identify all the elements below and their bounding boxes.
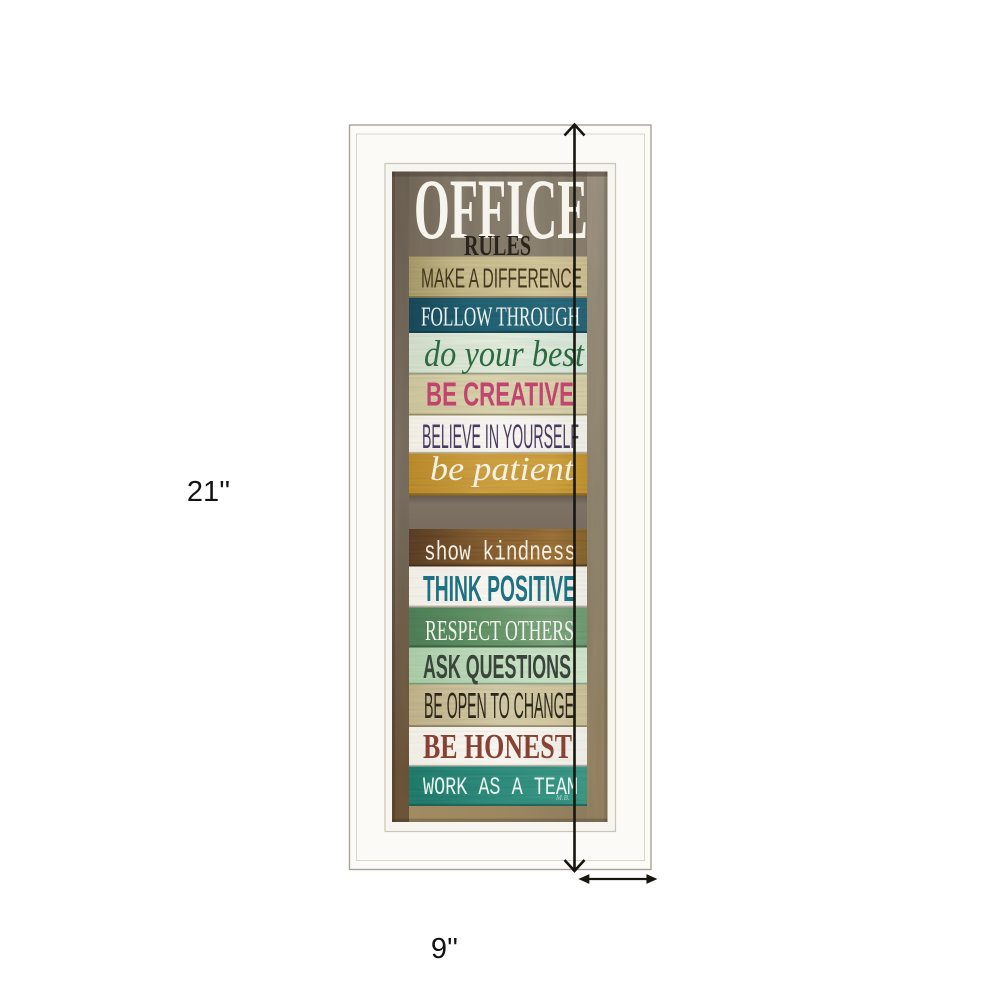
svg-text:do your best: do your best bbox=[424, 334, 585, 375]
svg-text:ASK QUESTIONS: ASK QUESTIONS bbox=[423, 648, 571, 685]
svg-text:M.B.: M.B. bbox=[555, 794, 570, 802]
svg-text:MAKE A DIFFERENCE: MAKE A DIFFERENCE bbox=[421, 263, 582, 294]
svg-text:BE CREATIVE: BE CREATIVE bbox=[426, 376, 574, 413]
svg-text:9'': 9'' bbox=[431, 933, 458, 965]
svg-text:21'': 21'' bbox=[187, 476, 230, 508]
svg-text:FOLLOW THROUGH: FOLLOW THROUGH bbox=[421, 302, 580, 332]
svg-text:WORK AS A TEAM: WORK AS A TEAM bbox=[423, 773, 578, 802]
svg-text:RESPECT OTHERS: RESPECT OTHERS bbox=[425, 616, 574, 647]
svg-text:THINK POSITIVE: THINK POSITIVE bbox=[423, 568, 576, 609]
svg-text:BE HONEST: BE HONEST bbox=[423, 727, 572, 766]
svg-text:show kindness: show kindness bbox=[424, 538, 576, 568]
svg-text:be patient: be patient bbox=[430, 451, 576, 488]
svg-text:BE OPEN TO CHANGE: BE OPEN TO CHANGE bbox=[424, 685, 574, 726]
